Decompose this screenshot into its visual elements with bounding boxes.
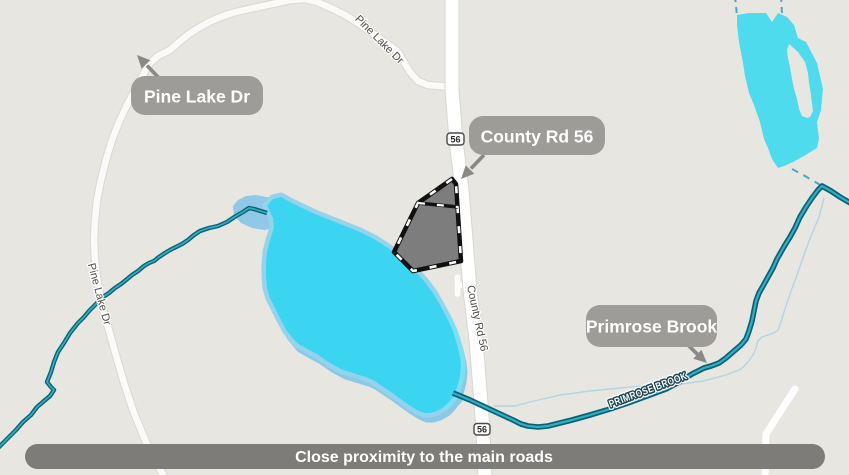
svg-text:Close proximity to the main ro: Close proximity to the main roads: [295, 449, 553, 466]
svg-text:56: 56: [477, 425, 487, 435]
svg-text:Primrose Brook: Primrose Brook: [586, 317, 718, 337]
svg-text:County Rd 56: County Rd 56: [481, 127, 594, 147]
svg-text:56: 56: [450, 135, 460, 145]
svg-text:Pine Lake Dr: Pine Lake Dr: [144, 87, 250, 107]
